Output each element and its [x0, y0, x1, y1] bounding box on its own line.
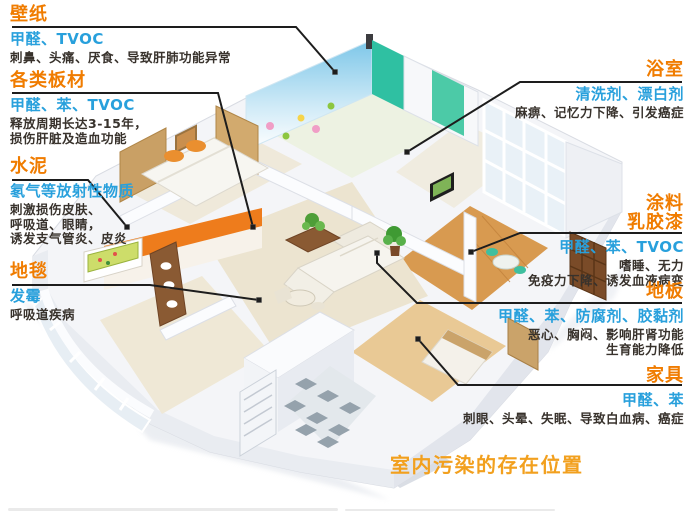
callout-floor: 地板 甲醛、苯、防腐剂、胶黏剂 恶心、胸闷、影响肝肾功能 生育能力降低 [498, 282, 684, 357]
callout-title: 地毯 [10, 262, 75, 281]
cropped-text-artifact [8, 508, 338, 511]
callout-effect-line: 呼吸道疾病 [10, 308, 75, 323]
callout-pollutants: 甲醛、TVOC [10, 31, 231, 48]
callout-title: 涂料 [528, 194, 684, 213]
callout-effect-line: 麻痹、记忆力下降、引发癌症 [515, 106, 684, 121]
callout-carpet: 地毯 发霉 呼吸道疾病 [10, 262, 75, 323]
callout-pollutants: 甲醛、苯、防腐剂、胶黏剂 [498, 308, 684, 325]
infographic-indoor-pollution: 壁纸 甲醛、TVOC 刺鼻、头痛、厌食、导致肝肺功能异常 各类板材 甲醛、苯、T… [0, 0, 690, 513]
callout-effect-line: 生育能力降低 [498, 343, 684, 358]
callout-effect-line: 呼吸道、眼睛， [10, 218, 134, 233]
callout-pollutants: 清洗剂、漂白剂 [515, 86, 684, 103]
roof-vent [366, 34, 373, 49]
callout-effect-line: 恶心、胸闷、影响肝肾功能 [498, 328, 684, 343]
callout-pollutants: 发霉 [10, 288, 75, 305]
callout-title: 地板 [498, 282, 684, 301]
callout-pollutants: 甲醛、苯 [463, 392, 684, 409]
callout-title: 家具 [463, 366, 684, 385]
cropped-text-artifact [345, 509, 555, 511]
page-title: 室内污染的存在位置 [390, 449, 584, 478]
callout-wallpaper: 壁纸 甲醛、TVOC 刺鼻、头痛、厌食、导致肝肺功能异常 [10, 5, 231, 66]
callout-title: 水泥 [10, 157, 134, 176]
callout-title: 各类板材 [10, 71, 147, 90]
callout-furniture: 家具 甲醛、苯 刺眼、头晕、失眠、导致白血病、癌症 [463, 366, 684, 427]
callout-effect-line: 损伤肝脏及造血功能 [10, 132, 147, 147]
callout-pollutants: 氡气等放射性物质 [10, 183, 134, 200]
callout-effect-line: 嗜睡、无力 [528, 259, 684, 274]
callout-cement: 水泥 氡气等放射性物质 刺激损伤皮肤、 呼吸道、眼睛， 诱发支气管炎、皮炎 [10, 157, 134, 247]
callout-boards: 各类板材 甲醛、苯、TVOC 释放周期长达3-15年， 损伤肝脏及造血功能 [10, 71, 147, 146]
callout-effect-line: 刺激损伤皮肤、 [10, 203, 134, 218]
callout-effect-line: 诱发支气管炎、皮炎 [10, 232, 134, 247]
callout-title: 浴室 [515, 60, 684, 79]
callout-title: 壁纸 [10, 5, 231, 24]
callout-effect-line: 刺眼、头晕、失眠、导致白血病、癌症 [463, 412, 684, 427]
callout-paint: 涂料 乳胶漆 甲醛、苯、TVOC 嗜睡、无力 免疫力下降、诱发血液病变 [528, 194, 684, 288]
callout-pollutants: 甲醛、苯、TVOC [10, 97, 147, 114]
callout-title-line2: 乳胶漆 [528, 213, 684, 232]
callout-pollutants: 甲醛、苯、TVOC [528, 239, 684, 256]
callout-bathroom: 浴室 清洗剂、漂白剂 麻痹、记忆力下降、引发癌症 [515, 60, 684, 121]
callout-effect-line: 刺鼻、头痛、厌食、导致肝肺功能异常 [10, 51, 231, 66]
callout-effect-line: 释放周期长达3-15年， [10, 117, 147, 132]
